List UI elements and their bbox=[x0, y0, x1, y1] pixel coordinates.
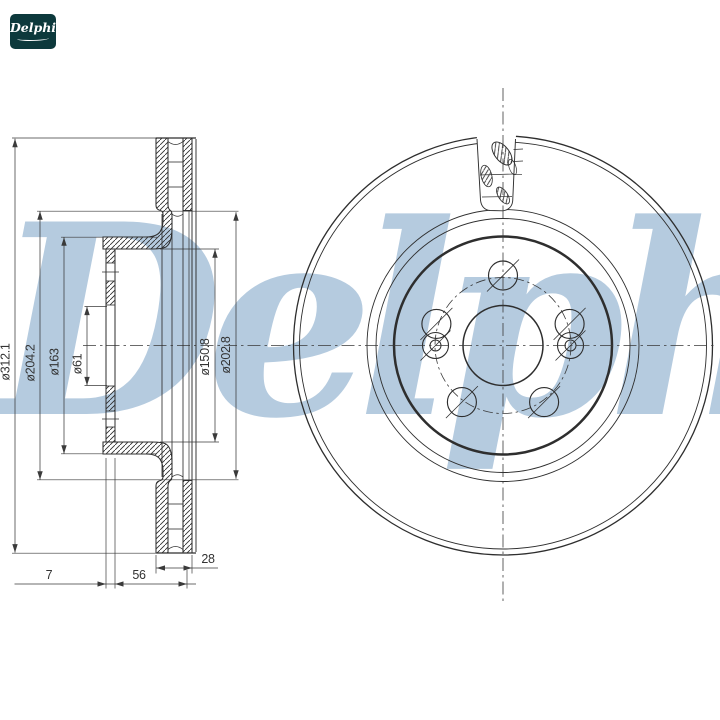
flange-hatch bbox=[106, 281, 115, 305]
bolt-hole-tick bbox=[446, 386, 478, 418]
delphi-logo: Delphi bbox=[10, 14, 56, 49]
outer-plate-section-bottom bbox=[183, 481, 192, 554]
dim-label-disc-thickness: 28 bbox=[201, 552, 215, 566]
front-view bbox=[83, 88, 714, 603]
delphi-logo-swoosh-icon bbox=[17, 36, 49, 41]
outer-plate-section-top bbox=[183, 138, 192, 211]
channel-end-radius bbox=[172, 214, 183, 216]
flange-hatch bbox=[106, 386, 115, 411]
dim-label-bore-diameter: ø61 bbox=[71, 353, 85, 374]
channel-end-radius bbox=[172, 475, 183, 477]
vent-entry-radius bbox=[168, 547, 183, 550]
bolt-hole-tick bbox=[420, 308, 452, 340]
dim-label-flange-diameter: ø150.8 bbox=[198, 338, 212, 375]
dim-label-overall-height: 56 bbox=[132, 568, 146, 582]
dimensions: ø312.1 ø204.2 ø163 ø61 ø150.8 ø202.8 7 5… bbox=[0, 138, 239, 589]
bolt-circle-centerline bbox=[435, 278, 571, 414]
flange-hatch bbox=[106, 249, 115, 263]
bolt-hole-tick bbox=[528, 386, 560, 418]
dim-label-hat-diameter: ø163 bbox=[48, 348, 62, 376]
dim-label-step-diameter: ø202.8 bbox=[219, 336, 233, 373]
dim-label-flange-thickness: 7 bbox=[46, 568, 53, 582]
drawing-page: Delphi Delphi bbox=[0, 0, 720, 720]
flange-hatch bbox=[106, 427, 115, 442]
dim-label-outer-diameter: ø312.1 bbox=[0, 343, 13, 380]
dim-label-plate-diameter: ø204.2 bbox=[24, 344, 38, 381]
brake-disc-technical-drawing: ø312.1 ø204.2 ø163 ø61 ø150.8 ø202.8 7 5… bbox=[0, 0, 720, 720]
delphi-logo-text: Delphi bbox=[10, 22, 56, 35]
vent-entry-radius bbox=[168, 142, 183, 145]
